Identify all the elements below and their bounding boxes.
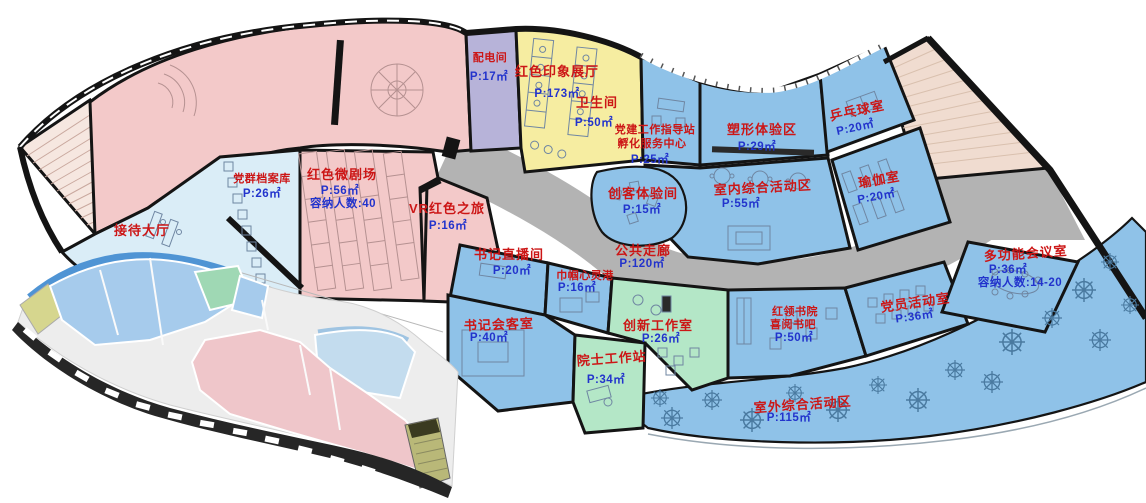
floor-plan-screenshot: 红色印象展厅 P:173㎡ 配电间 P:17㎡ 卫生间 P:50㎡ 党建工作指导… xyxy=(0,0,1146,503)
label-power-room: 配电间 xyxy=(473,50,508,64)
label-womens-harbor: 巾帼心灵港 xyxy=(556,268,614,282)
label-maker-room: 创客体验间 xyxy=(607,186,678,201)
label-reception-hall: 接待大厅 xyxy=(114,223,170,238)
area-power-room: P:17㎡ xyxy=(470,69,508,83)
label-micro-theater: 红色微剧场 xyxy=(307,167,377,182)
label-corridor: 公共走廊 xyxy=(615,243,671,258)
label-restroom: 卫生间 xyxy=(576,95,618,110)
area-innovation-studio: P:26㎡ xyxy=(642,331,680,345)
area-body-shaping: P:29㎡ xyxy=(738,139,776,153)
area-secretary-meeting: P:40㎡ xyxy=(470,330,508,344)
label-book-academy-2: 喜阅书吧 xyxy=(770,317,816,331)
area-multifunction: P:36㎡ xyxy=(989,262,1027,276)
area-micro-theater: P:56㎡ xyxy=(321,183,359,197)
area-indoor-zone: P:55㎡ xyxy=(722,196,760,210)
area-restroom: P:50㎡ xyxy=(575,115,613,129)
area-vr-journey: P:16㎡ xyxy=(429,218,467,232)
label-vr-journey: VR红色之旅 xyxy=(409,201,485,216)
area-livestream: P:20㎡ xyxy=(493,263,531,277)
area-maker-room: P:15㎡ xyxy=(623,202,661,216)
area-party-guidance: P:25㎡ xyxy=(631,152,669,166)
area-corridor: P:120㎡ xyxy=(619,256,664,270)
area-archives: P:26㎡ xyxy=(243,186,281,200)
label-archives: 党群档案库 xyxy=(233,171,291,185)
label-party-guidance-2: 孵化服务中心 xyxy=(618,136,687,150)
label-party-guidance: 党建工作指导站 xyxy=(615,122,696,136)
capacity-multifunction: 容纳人数:14-20 xyxy=(977,275,1062,289)
floor-plan-svg: 红色印象展厅 P:173㎡ 配电间 P:17㎡ 卫生间 P:50㎡ 党建工作指导… xyxy=(0,0,1146,503)
capacity-micro-theater: 容纳人数:40 xyxy=(309,196,376,210)
label-exhibition-hall: 红色印象展厅 xyxy=(515,64,599,79)
label-book-academy: 红领书院 xyxy=(772,304,818,318)
label-secretary-meeting: 书记会客室 xyxy=(464,316,534,333)
area-book-academy: P:50㎡ xyxy=(775,330,813,344)
area-academician: P:34㎡ xyxy=(587,372,625,386)
label-livestream: 书记直播间 xyxy=(474,247,544,262)
label-innovation-studio: 创新工作室 xyxy=(622,318,693,333)
room-power-room xyxy=(466,29,521,151)
area-outdoor-zone: P:115㎡ xyxy=(767,410,812,424)
area-exhibition-hall: P:173㎡ xyxy=(534,86,579,100)
label-body-shaping: 塑形体验区 xyxy=(727,122,797,137)
area-womens-harbor: P:16㎡ xyxy=(558,280,596,294)
